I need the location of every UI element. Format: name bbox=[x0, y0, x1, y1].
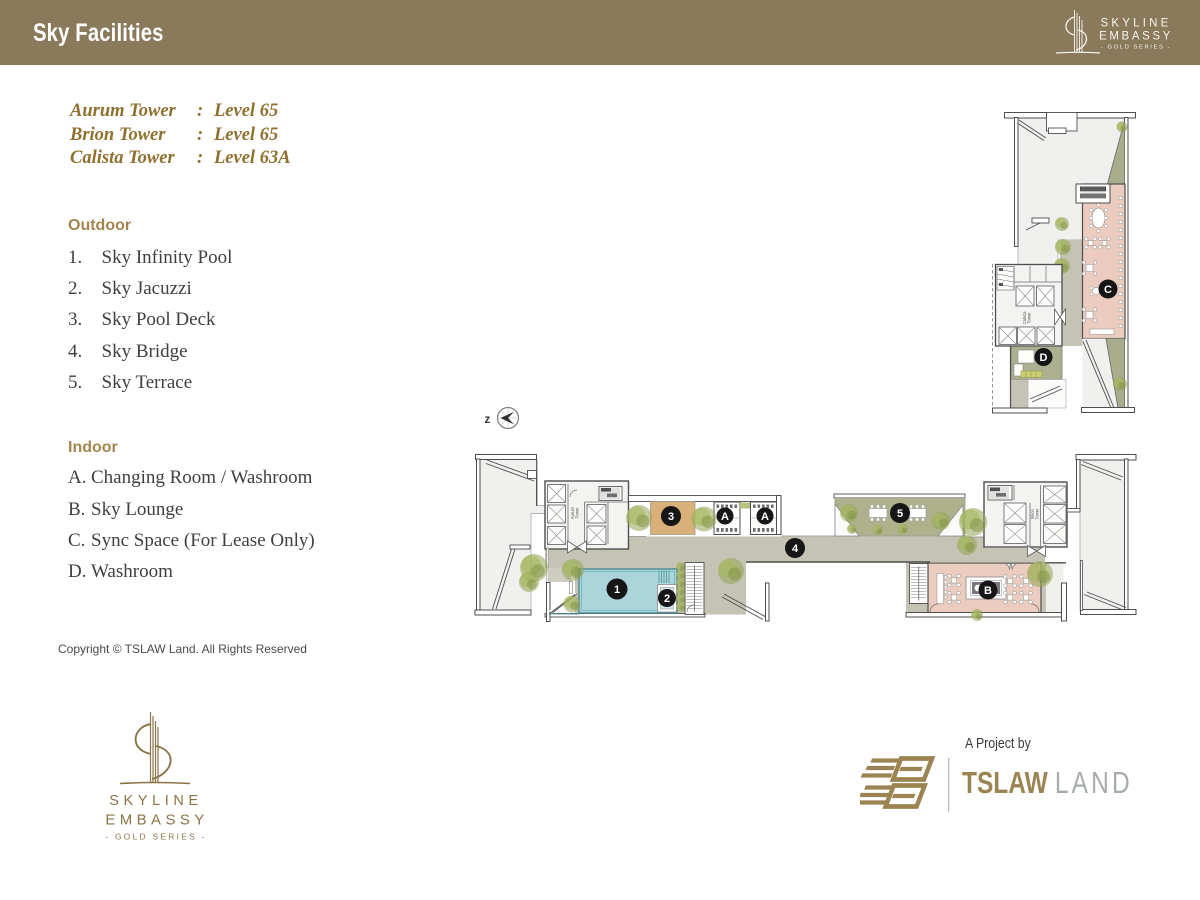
svg-text:SKYLINE: SKYLINE bbox=[109, 793, 202, 809]
svg-text:- GOLD SERIES -: - GOLD SERIES - bbox=[105, 832, 207, 842]
svg-text:AurumTower: AurumTower bbox=[570, 506, 580, 519]
svg-text:B: B bbox=[984, 585, 992, 597]
svg-text:C: C bbox=[1104, 284, 1112, 296]
svg-text:1: 1 bbox=[614, 584, 620, 596]
svg-text:A: A bbox=[721, 511, 729, 523]
svg-text:EMBASSY: EMBASSY bbox=[1099, 31, 1173, 43]
svg-text:3: 3 bbox=[668, 511, 674, 523]
svg-text:- GOLD SERIES -: - GOLD SERIES - bbox=[1101, 45, 1171, 51]
svg-text:z: z bbox=[485, 414, 491, 426]
svg-text:2: 2 bbox=[664, 593, 670, 605]
svg-text:4: 4 bbox=[792, 543, 799, 555]
svg-text:CalistaTower: CalistaTower bbox=[1022, 311, 1032, 324]
svg-text:EMBASSY: EMBASSY bbox=[105, 812, 208, 829]
svg-text:D: D bbox=[1040, 352, 1048, 364]
svg-text:BrionTower: BrionTower bbox=[1030, 508, 1040, 520]
svg-text:A: A bbox=[761, 511, 769, 523]
svg-text:SKYLINE: SKYLINE bbox=[1101, 18, 1172, 30]
svg-text:5: 5 bbox=[897, 508, 903, 520]
